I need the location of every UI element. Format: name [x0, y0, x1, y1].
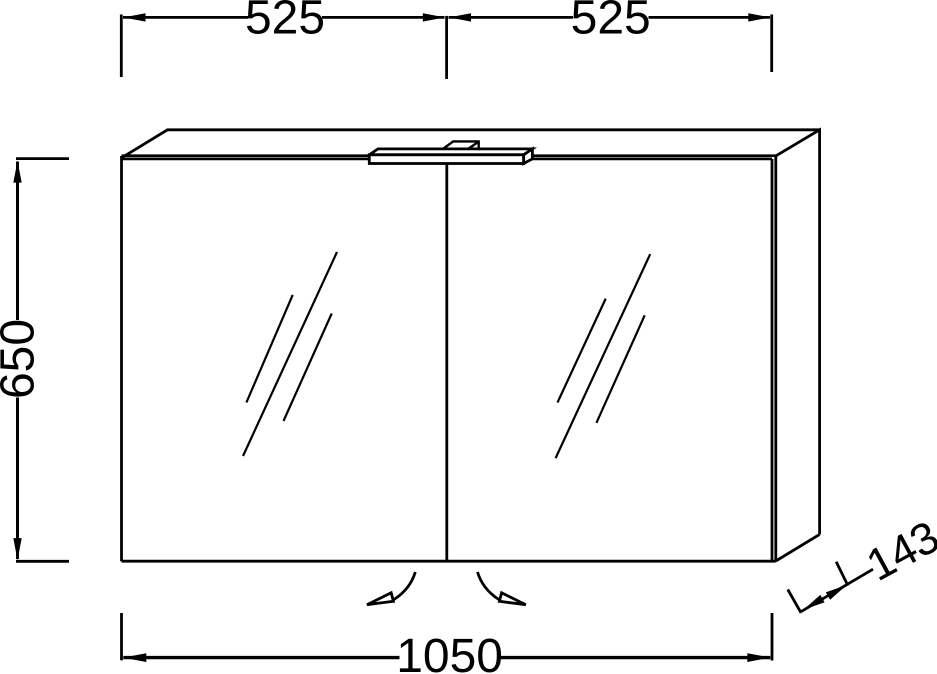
svg-text:525: 525: [571, 0, 651, 45]
svg-text:650: 650: [0, 319, 45, 399]
svg-text:525: 525: [245, 0, 325, 45]
svg-text:1050: 1050: [396, 630, 503, 674]
